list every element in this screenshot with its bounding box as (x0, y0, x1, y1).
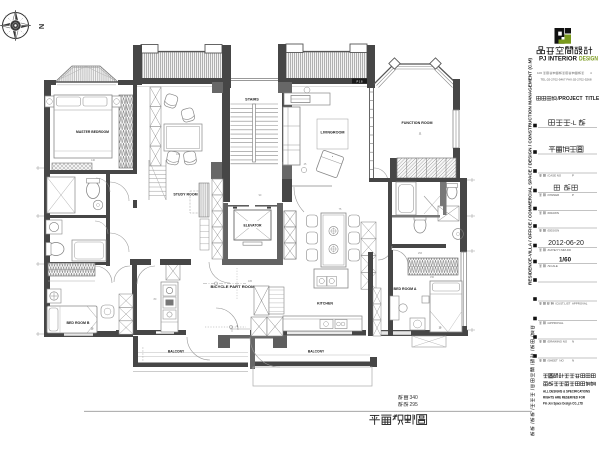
svg-text:STUDY ROOM: STUDY ROOM (173, 193, 197, 197)
svg-text:N: N (37, 24, 46, 29)
svg-text:/DESIGN: /DESIGN (547, 228, 559, 232)
svg-text:1/60: 1/60 (559, 257, 572, 264)
svg-text:P: P (572, 173, 574, 177)
svg-text:N: N (572, 339, 574, 343)
svg-text:RESIDENCE-VILLA / OFFICE / COM: RESIDENCE-VILLA / OFFICE / COMMERCIAL SP… (528, 58, 534, 285)
svg-text:P 1 8: P 1 8 (356, 80, 363, 84)
svg-text:/PROJECT TITLE: /PROJECT TITLE (558, 96, 600, 102)
svg-text:BALCONY: BALCONY (308, 350, 325, 354)
svg-text:BICYCLE PART ROOM: BICYCLE PART ROOM (211, 285, 255, 289)
svg-text:340: 340 (410, 395, 419, 401)
svg-text:MASTER BEDROOM: MASTER BEDROOM (76, 130, 109, 134)
svg-text:/SCALE: /SCALE (548, 264, 558, 268)
svg-text:STAIRS: STAIRS (245, 98, 259, 102)
svg-text:BALCONY: BALCONY (168, 350, 185, 354)
svg-text:150: 150 (430, 276, 435, 279)
svg-text:/CUST.LIST: /CUST.LIST (555, 301, 570, 305)
svg-text:APPROVAL: APPROVAL (572, 301, 588, 305)
svg-text:TEL:02-2702-5467 FAX:02-2702-5: TEL:02-2702-5467 FAX:02-2702-5268 (540, 78, 591, 82)
svg-text:140: 140 (91, 159, 96, 162)
svg-text:ALL DESIGNS & SPECIFICATIONS: ALL DESIGNS & SPECIFICATIONS (543, 389, 590, 394)
svg-text:166: 166 (176, 153, 181, 156)
svg-text:LIVINGROOM: LIVINGROOM (321, 131, 345, 135)
svg-text:BED ROOM B: BED ROOM B (67, 321, 91, 325)
svg-text:P: P (572, 193, 574, 197)
svg-text:BED ROOM A: BED ROOM A (394, 287, 418, 291)
svg-text:295: 295 (410, 402, 419, 408)
svg-text:FUNCTION ROOM: FUNCTION ROOM (402, 121, 433, 125)
svg-text:KITCHEN: KITCHEN (317, 302, 333, 306)
svg-text:/SHEET NO: /SHEET NO (547, 358, 564, 362)
svg-text:DESIGN: DESIGN (579, 56, 598, 63)
svg-text:/DRAWING NO: /DRAWING NO (547, 339, 568, 343)
svg-text:-L: -L (571, 120, 577, 127)
svg-text:/OWNER: /OWNER (547, 193, 559, 197)
svg-text:N: N (572, 358, 574, 362)
svg-text:/APPROVAL: /APPROVAL (547, 321, 564, 325)
svg-text:253: 253 (418, 252, 423, 255)
svg-text:ELEVATOR: ELEVATOR (244, 224, 262, 228)
svg-text:106: 106 (537, 71, 542, 75)
svg-text:/CASE NO: /CASE NO (547, 173, 562, 177)
svg-text:/DATE/YY-MM-DD: /DATE/YY-MM-DD (548, 248, 572, 252)
svg-text:210: 210 (120, 116, 125, 119)
svg-text:RIGHTS ARE RESERVED FOR: RIGHTS ARE RESERVED FOR (543, 395, 585, 400)
svg-text:/DRAWN: /DRAWN (547, 211, 559, 215)
svg-text:Pin Jen Space Design CO.,LTD: Pin Jen Space Design CO.,LTD (543, 401, 583, 406)
svg-text:2012-06-20: 2012-06-20 (548, 240, 584, 247)
svg-text:PJ INTERIOR: PJ INTERIOR (539, 56, 577, 63)
svg-text:105: 105 (248, 280, 253, 283)
